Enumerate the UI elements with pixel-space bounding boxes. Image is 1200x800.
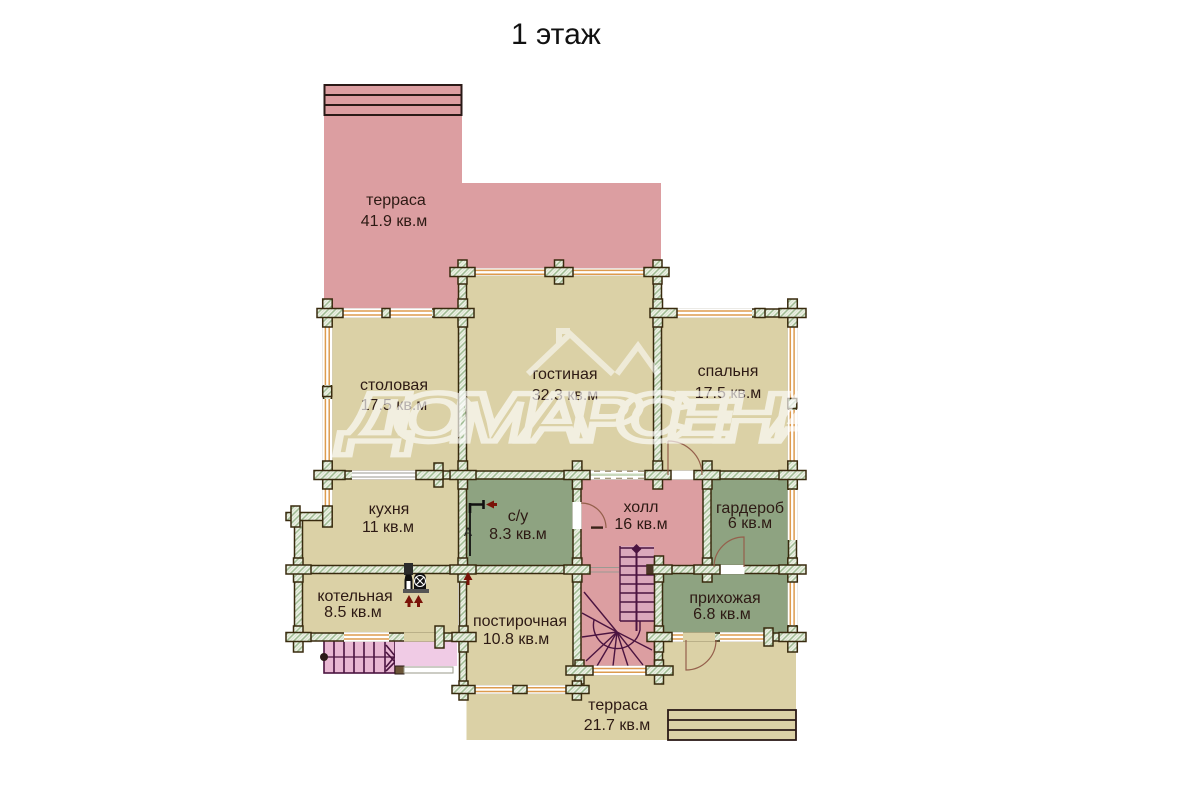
svg-text:котельная: котельная [317,588,392,605]
svg-text:1 этаж: 1 этаж [511,18,601,51]
svg-text:постирочная: постирочная [473,613,567,630]
svg-text:ДОМ АРСЕНАЛ: ДОМ АРСЕНАЛ [335,379,894,456]
svg-text:6.8 кв.м: 6.8 кв.м [693,606,751,623]
svg-text:11 кв.м: 11 кв.м [362,519,414,536]
svg-text:41.9 кв.м: 41.9 кв.м [361,213,428,230]
svg-text:А: А [464,525,472,539]
svg-text:терраса: терраса [588,697,648,714]
svg-text:10.8 кв.м: 10.8 кв.м [483,631,550,648]
svg-text:спальня: спальня [698,363,759,380]
svg-text:21.7 кв.м: 21.7 кв.м [584,717,651,734]
svg-text:прихожая: прихожая [689,590,760,607]
svg-text:6 кв.м: 6 кв.м [728,515,772,532]
svg-text:8.3 кв.м: 8.3 кв.м [489,526,547,543]
svg-text:терраса: терраса [366,192,426,209]
svg-text:8.5 кв.м: 8.5 кв.м [324,604,382,621]
svg-text:16 кв.м: 16 кв.м [614,516,667,533]
svg-text:с/у: с/у [508,508,528,525]
svg-text:кухня: кухня [369,501,410,518]
svg-text:холл: холл [623,499,658,516]
